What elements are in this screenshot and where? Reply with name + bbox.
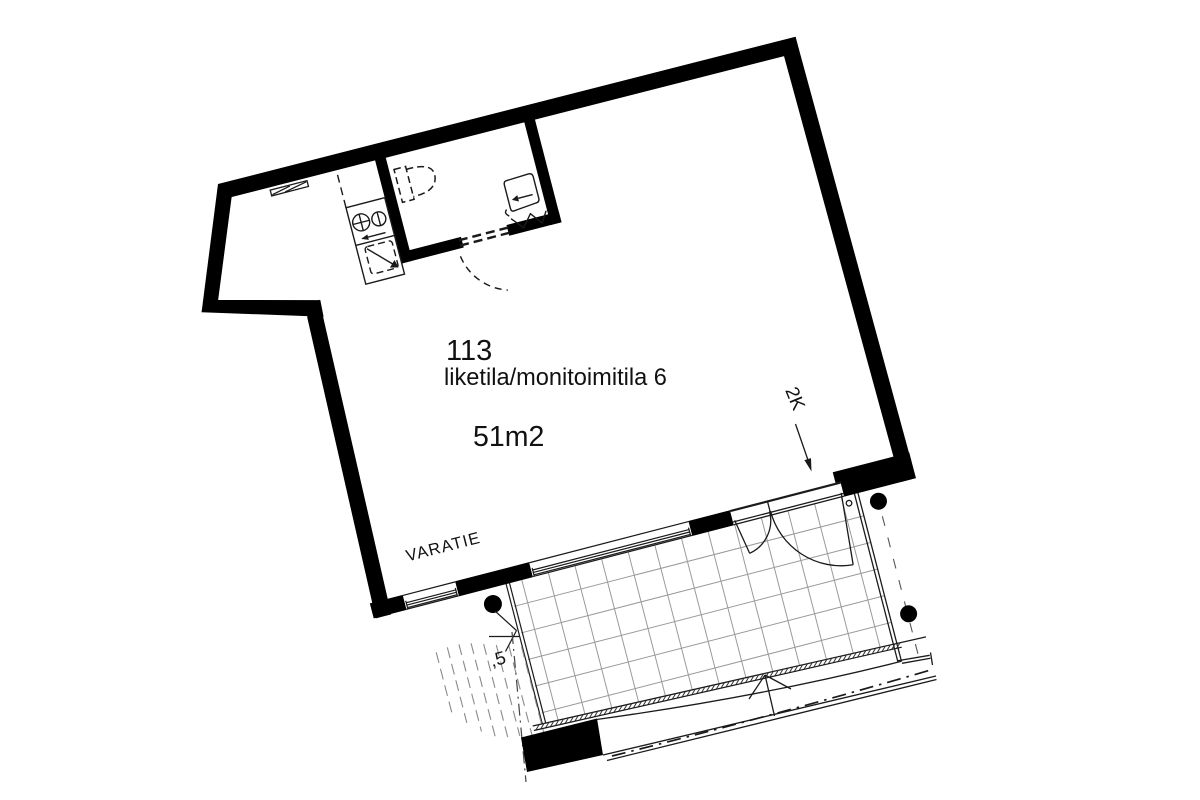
svg-text:,5: ,5 xyxy=(488,647,508,671)
svg-text:2K: 2K xyxy=(780,384,808,414)
svg-text:VARATIE: VARATIE xyxy=(404,529,483,566)
svg-text:51m2: 51m2 xyxy=(473,421,544,453)
svg-text:113: 113 xyxy=(446,335,492,367)
svg-text:liketila/monitoimitila 6: liketila/monitoimitila 6 xyxy=(444,365,667,391)
